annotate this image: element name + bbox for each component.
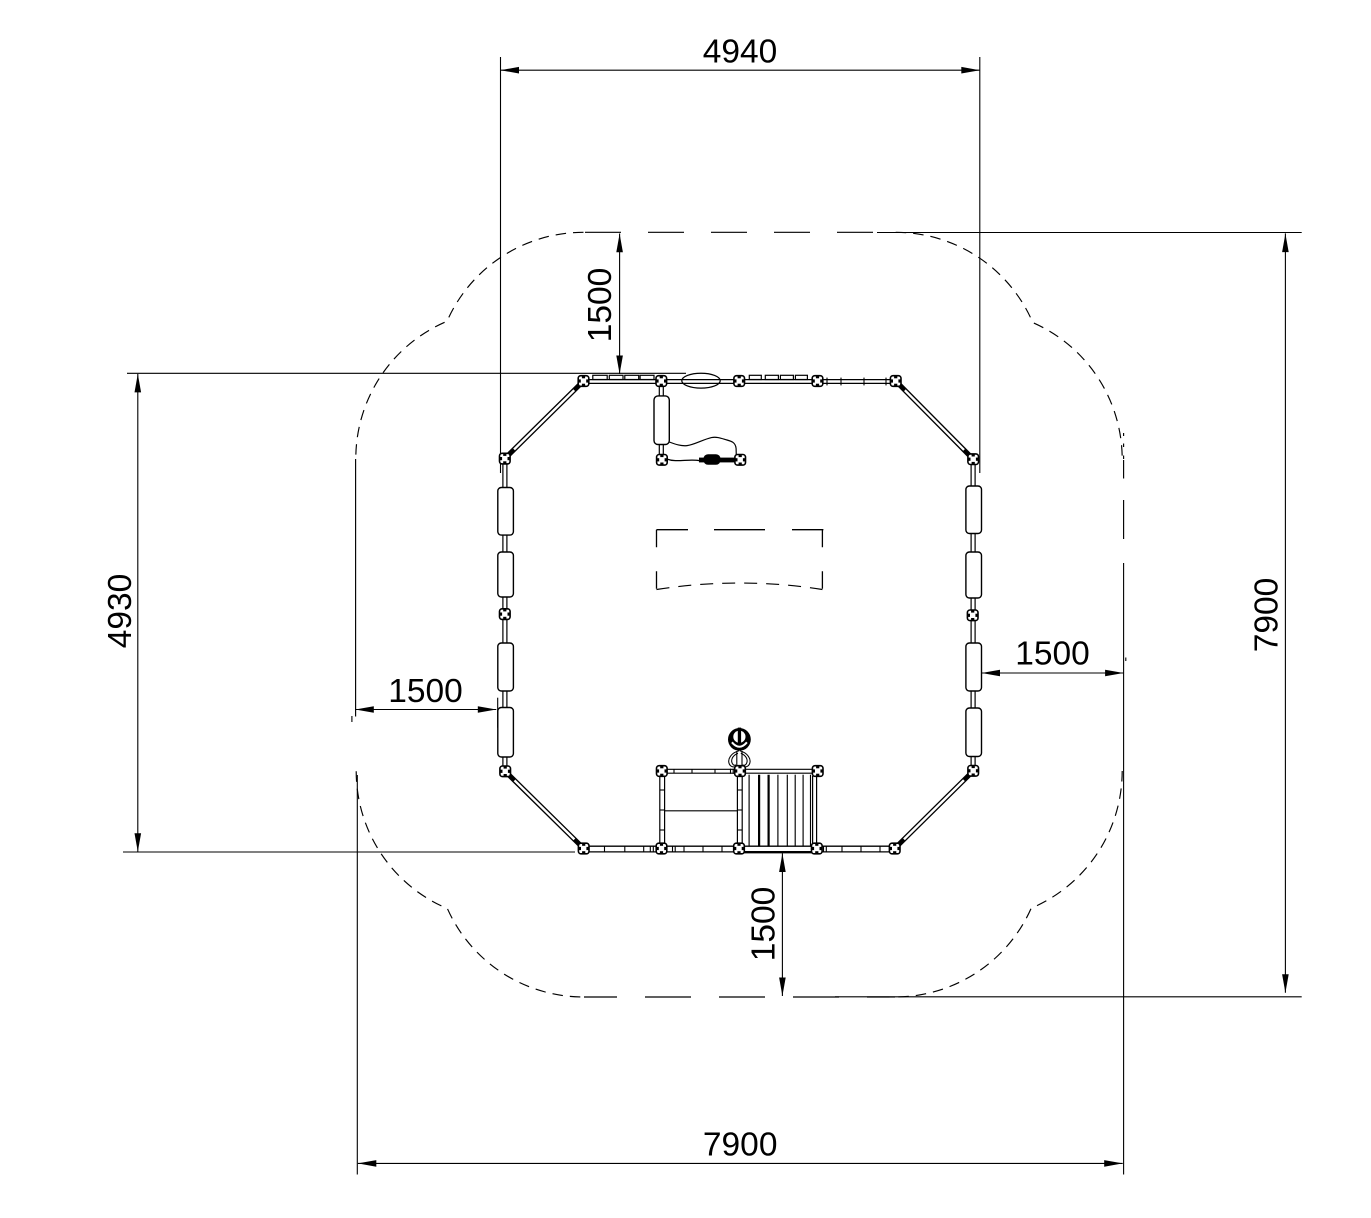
svg-text:7900: 7900	[1249, 578, 1286, 653]
svg-text:1500: 1500	[388, 673, 463, 710]
svg-text:1500: 1500	[1015, 636, 1090, 673]
svg-text:1500: 1500	[582, 268, 619, 343]
svg-text:7900: 7900	[703, 1127, 778, 1164]
svg-text:4930: 4930	[102, 574, 139, 649]
svg-text:1500: 1500	[745, 887, 782, 962]
svg-text:4940: 4940	[703, 33, 778, 70]
